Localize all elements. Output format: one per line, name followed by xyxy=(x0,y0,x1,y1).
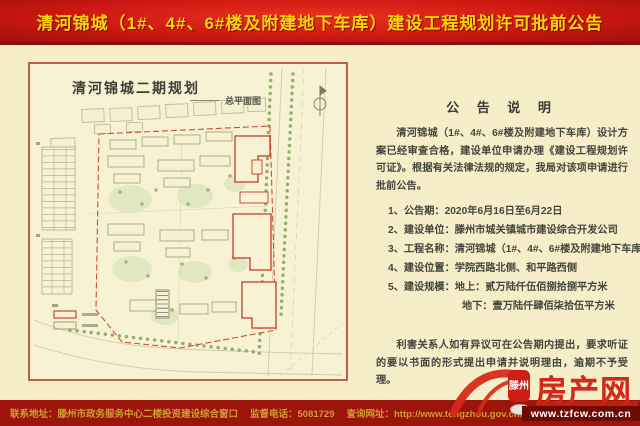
notice-column: 公 告 说 明 清河锦城（1#、4#、6#楼及附建地下车库）设计方案已经审查合格… xyxy=(376,97,628,390)
legend-line xyxy=(190,100,220,101)
notice-item-period: 1、公告期：2020年6月16日至6月22日 xyxy=(376,202,628,221)
seal-text: 滕州 xyxy=(509,381,529,392)
map-key xyxy=(52,304,98,329)
indicator-table-1 xyxy=(36,142,75,230)
announcement-poster: 清河锦城（1#、4#、6#楼及附建地下车库）建设工程规划许可批前公告 xyxy=(0,0,640,426)
tengzhou-seal: 滕州 xyxy=(508,370,530,402)
footer-phone: 监督电话：5081729 xyxy=(250,406,334,420)
notice-item-scale-underground: 地下：壹万陆仟肆佰柒拾伍平方米 xyxy=(376,297,628,316)
notice-item-project: 3、工程名称：清河锦城（1#、4#、6#楼及附建地下车库） xyxy=(376,240,628,259)
footer-address: 联系地址：滕州市政务服务中心二楼投资建设综合窗口 xyxy=(10,406,238,420)
notice-intro: 清河锦城（1#、4#、6#楼及附建地下车库）设计方案已经审查合格，建设单位申请办… xyxy=(376,125,628,195)
notice-item-location: 4、建设位置：学院西路北侧、和平路西侧 xyxy=(376,259,628,278)
notice-list: 1、公告期：2020年6月16日至6月22日 2、建设单位：滕州市城关镇城市建设… xyxy=(376,202,628,316)
site-plan-legend: 总平面图 xyxy=(190,94,261,107)
notice-heading: 公 告 说 明 xyxy=(376,97,628,116)
watermark-url: www.tzfcw.com.cn xyxy=(531,408,632,420)
site-buildings xyxy=(108,132,236,314)
legend-label: 总平面图 xyxy=(225,94,261,107)
site-plan-drawing xyxy=(30,64,346,379)
site-plan-panel: 清河锦城二期规划 总平面图 xyxy=(28,62,348,381)
indicator-table-2 xyxy=(36,234,72,294)
watermark-logo: 滕州 房产网 www.tzfcw.com.cn xyxy=(448,360,640,424)
header-banner: 清河锦城（1#、4#、6#楼及附建地下车库）建设工程规划许可批前公告 xyxy=(0,0,640,45)
watermark-url-box: www.tzfcw.com.cn xyxy=(522,406,640,421)
notice-item-scale: 5、建设规模：地上：贰万陆仟伍佰捌拾捌平方米 xyxy=(376,278,628,297)
page-title: 清河锦城（1#、4#、6#楼及附建地下车库）建设工程规划许可批前公告 xyxy=(37,9,604,34)
site-plan-title: 清河锦城二期规划 xyxy=(72,78,200,98)
garage-structure xyxy=(156,290,169,318)
approved-buildings xyxy=(233,136,276,328)
notice-item-builder: 2、建设单位：滕州市城关镇城市建设综合开发公司 xyxy=(376,221,628,240)
